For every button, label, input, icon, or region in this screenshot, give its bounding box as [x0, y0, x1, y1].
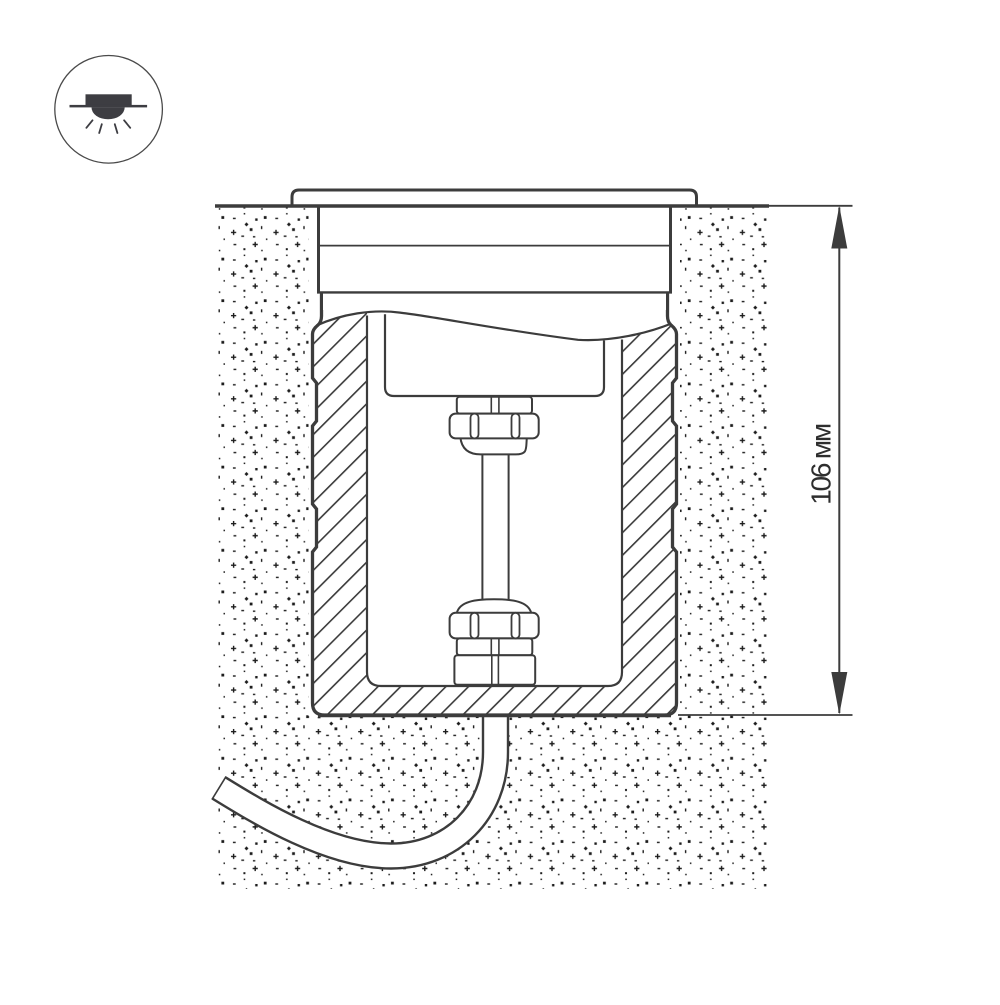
svg-text:106 мм: 106 мм: [806, 424, 837, 505]
